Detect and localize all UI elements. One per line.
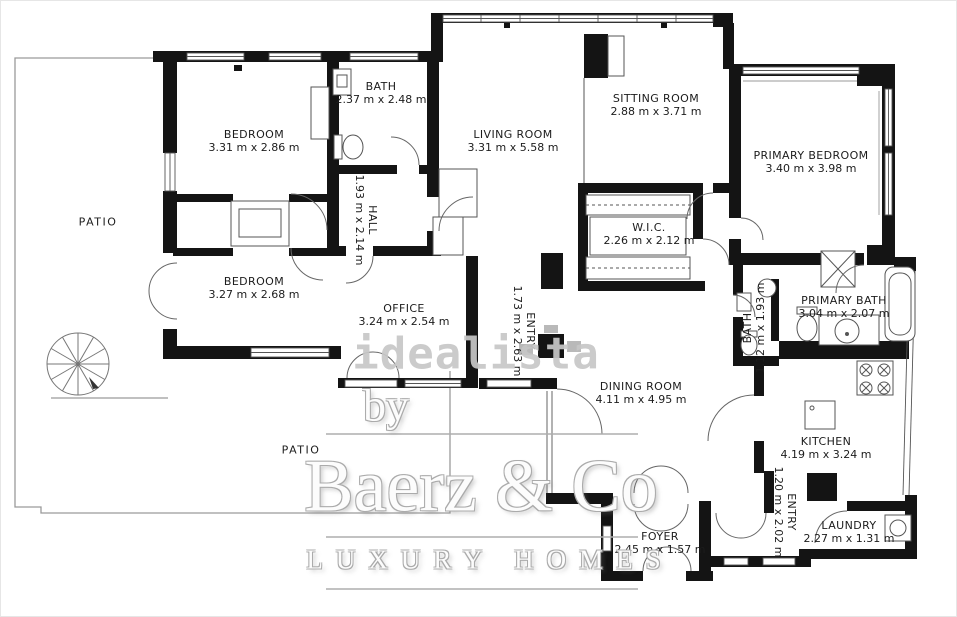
room-name: DINING ROOM [596, 380, 687, 393]
room-dimensions: 3.24 m x 2.54 m [359, 315, 450, 328]
floorplan-page: BEDROOM 3.31 m x 2.86 m BATH 2.37 m x 2.… [0, 0, 957, 617]
room-label-bath-2: BATH 1.12 m x 1.93 m [741, 283, 767, 374]
room-dimensions: 2.26 m x 2.12 m [604, 234, 695, 247]
spiral-staircase [47, 333, 109, 395]
room-dimensions: 1.93 m x 2.14 m [353, 175, 366, 266]
room-label-office: OFFICE 3.24 m x 2.54 m [359, 302, 450, 328]
room-label-bath-1: BATH 2.37 m x 2.48 m [336, 80, 427, 106]
room-dimensions: 3.31 m x 2.86 m [209, 141, 300, 154]
room-name: PRIMARY BEDROOM [753, 149, 868, 162]
watermark-by: by [363, 379, 409, 432]
room-dimensions: 1.12 m x 1.93 m [754, 283, 767, 374]
room-label-dining-room: DINING ROOM 4.11 m x 4.95 m [596, 380, 687, 406]
room-label-entry-2: ENTRY 1.20 m x 2.02 m [772, 467, 798, 558]
room-name: W.I.C. [604, 221, 695, 234]
room-dimensions: 2.27 m x 1.31 m [804, 532, 895, 545]
room-name: FOYER [615, 530, 706, 543]
room-dimensions: 3.31 m x 5.58 m [468, 141, 559, 154]
room-name: BEDROOM [209, 275, 300, 288]
room-name: BATH [741, 283, 754, 374]
room-dimensions: 2.37 m x 2.48 m [336, 93, 427, 106]
watermark-tagline: LUXURY HOMES [306, 545, 673, 576]
room-label-living-room: LIVING ROOM 3.31 m x 5.58 m [468, 128, 559, 154]
room-label-bedroom-1: BEDROOM 3.31 m x 2.86 m [209, 128, 300, 154]
room-dimensions: 4.19 m x 3.24 m [781, 448, 872, 461]
room-name: BATH [336, 80, 427, 93]
room-dimensions: 2.88 m x 3.71 m [611, 105, 702, 118]
room-name: HALL [366, 175, 379, 266]
room-label-sitting-room: SITTING ROOM 2.88 m x 3.71 m [611, 92, 702, 118]
room-name: KITCHEN [781, 435, 872, 448]
room-name: OFFICE [359, 302, 450, 315]
watermark-brand: Baerz & Co [304, 445, 657, 530]
room-label-primary-bath: PRIMARY BATH 3.04 m x 2.07 m [799, 294, 890, 320]
room-label-hall: HALL 1.93 m x 2.14 m [353, 175, 379, 266]
room-dimensions: 3.40 m x 3.98 m [753, 162, 868, 175]
room-name: PRIMARY BATH [799, 294, 890, 307]
room-name: LIVING ROOM [468, 128, 559, 141]
room-dimensions: 3.04 m x 2.07 m [799, 307, 890, 320]
room-name: LAUNDRY [804, 519, 895, 532]
room-label-wic: W.I.C. 2.26 m x 2.12 m [604, 221, 695, 247]
room-name: ENTRY [785, 467, 798, 558]
room-name: SITTING ROOM [611, 92, 702, 105]
room-label-primary-bedroom: PRIMARY BEDROOM 3.40 m x 3.98 m [753, 149, 868, 175]
room-label-kitchen: KITCHEN 4.19 m x 3.24 m [781, 435, 872, 461]
watermark-idealista: idealista [352, 329, 599, 380]
room-label-patio-left: PATIO [79, 216, 118, 229]
room-dimensions: 4.11 m x 4.95 m [596, 393, 687, 406]
room-label-laundry: LAUNDRY 2.27 m x 1.31 m [804, 519, 895, 545]
room-label-bedroom-2: BEDROOM 3.27 m x 2.68 m [209, 275, 300, 301]
room-name: BEDROOM [209, 128, 300, 141]
room-dimensions: 1.20 m x 2.02 m [772, 467, 785, 558]
room-dimensions: 3.27 m x 2.68 m [209, 288, 300, 301]
